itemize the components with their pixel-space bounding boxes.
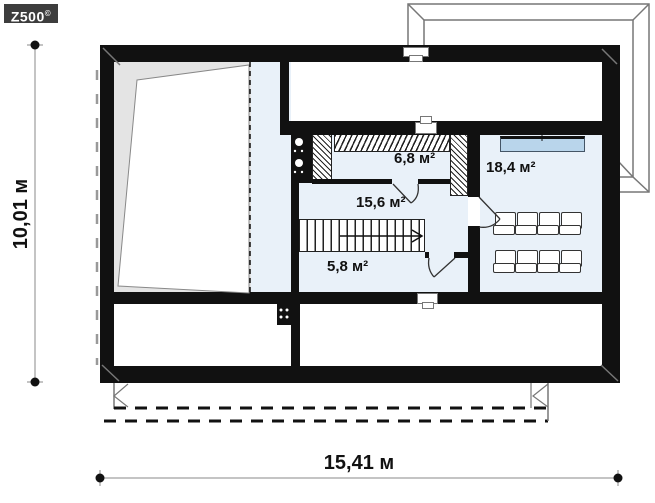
door-arc xyxy=(429,258,455,277)
logo-text: Z500 xyxy=(11,9,45,25)
dimension-label-width: 15,41 м xyxy=(279,452,439,475)
void-opening-polygon xyxy=(118,65,249,293)
stair-direction-arrow xyxy=(340,230,422,242)
floor-plan: Z500© 6,8 м² 15,6 м² 5,8 м² 18,4 м² 15,4… xyxy=(0,0,655,503)
dimension-label-height: 10,01 м xyxy=(10,154,34,274)
door-symbols xyxy=(393,184,500,277)
room-area-label-storage: 5,8 м² xyxy=(327,258,368,275)
room-area-label-cinema: 18,4 м² xyxy=(486,159,535,176)
room-area-label-hall: 15,6 м² xyxy=(356,194,405,211)
logo-copyright: © xyxy=(45,9,51,18)
door-arc xyxy=(479,197,500,227)
logo-badge: Z500© xyxy=(4,4,58,23)
chimney-flues xyxy=(280,138,304,319)
plan-linework xyxy=(0,0,655,503)
room-area-label-wardrobe: 6,8 м² xyxy=(394,150,435,167)
